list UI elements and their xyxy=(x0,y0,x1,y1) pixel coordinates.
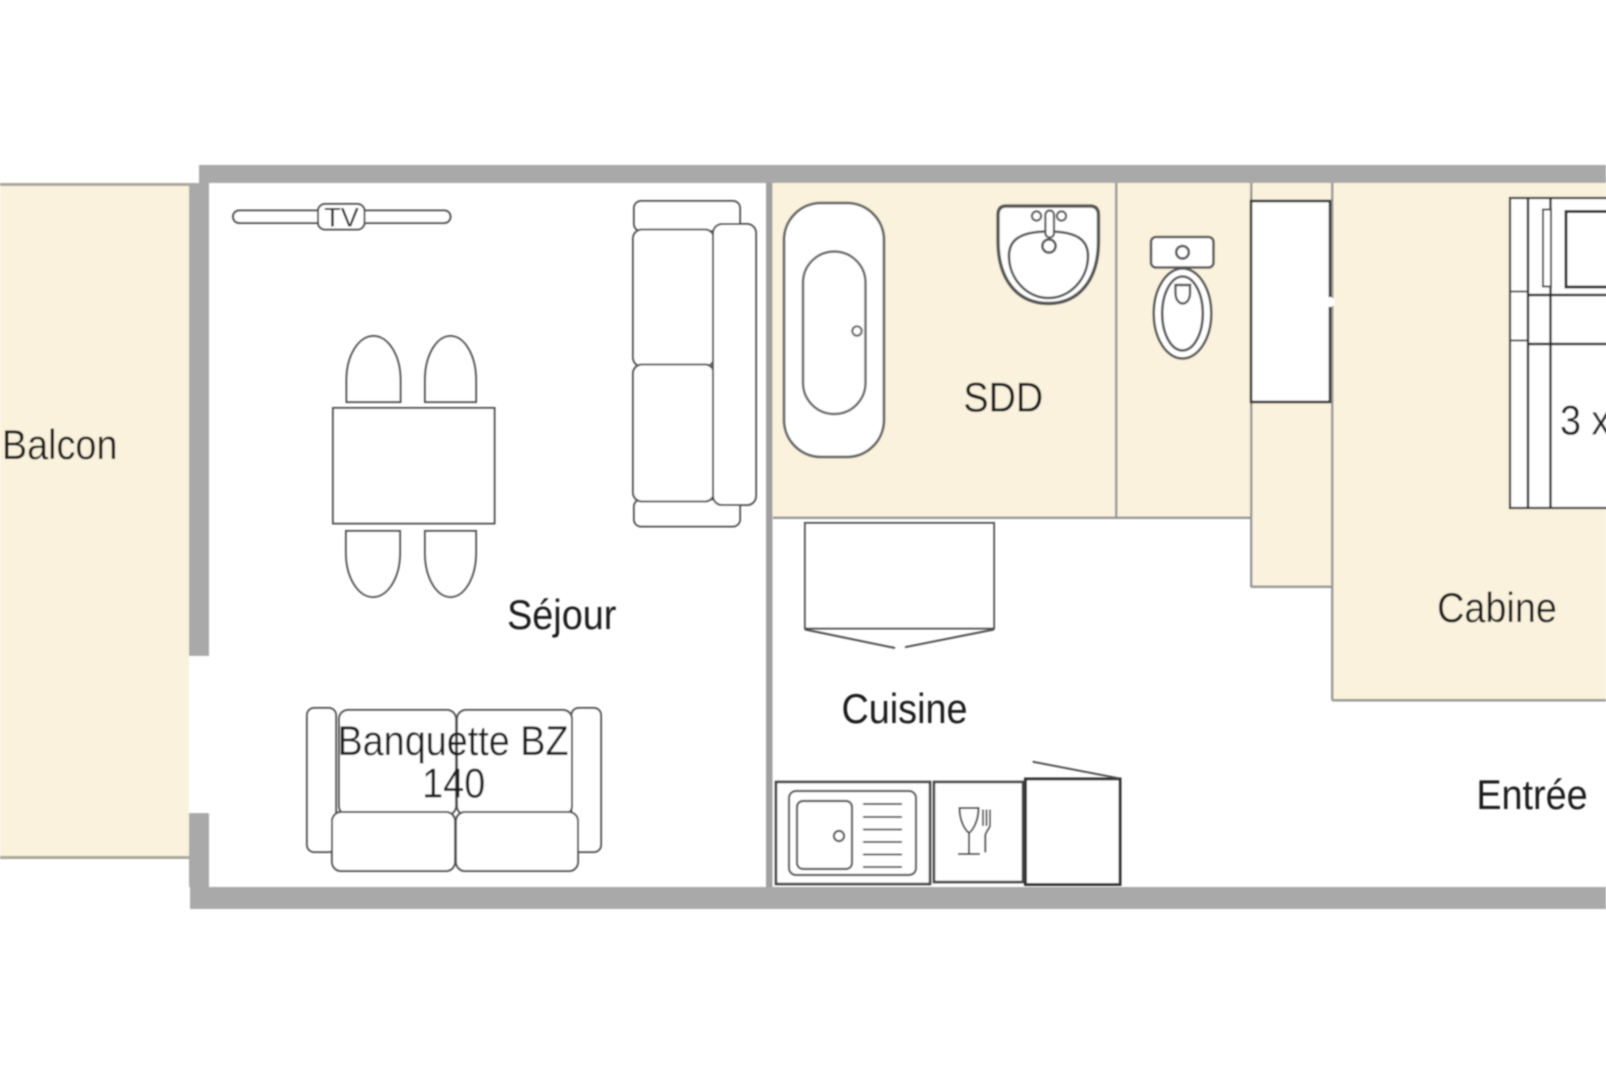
svg-text:SDD: SDD xyxy=(963,375,1043,421)
svg-text:Balcon: Balcon xyxy=(2,422,118,468)
svg-text:TV: TV xyxy=(324,203,359,233)
svg-text:Cuisine: Cuisine xyxy=(841,686,967,732)
svg-text:Entrée: Entrée xyxy=(1476,772,1587,818)
svg-text:140: 140 xyxy=(422,761,485,807)
svg-text:3 x 19: 3 x 19 xyxy=(1560,398,1606,444)
svg-text:Banquette BZ: Banquette BZ xyxy=(337,718,568,764)
svg-text:Séjour: Séjour xyxy=(507,592,616,638)
svg-text:Cabine: Cabine xyxy=(1437,585,1557,631)
